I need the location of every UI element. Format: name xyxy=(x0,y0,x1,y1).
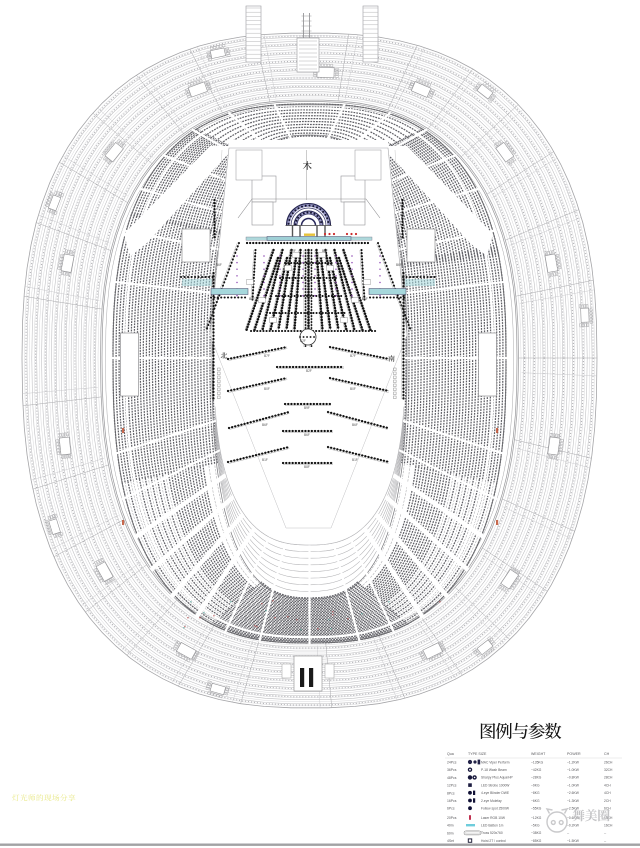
svg-text:4CH: 4CH xyxy=(604,783,611,787)
svg-text:~0.2KW: ~0.2KW xyxy=(567,824,580,828)
svg-text:B7F: B7F xyxy=(350,354,356,358)
svg-text:CH: CH xyxy=(604,752,610,756)
svg-text:4-eye Blinder DWE: 4-eye Blinder DWE xyxy=(481,791,510,795)
svg-text:B1F: B1F xyxy=(262,458,268,462)
svg-text:~1.3KW: ~1.3KW xyxy=(567,799,580,803)
svg-text:LED Batten 1m: LED Batten 1m xyxy=(481,824,504,828)
svg-text:20Pcs: 20Pcs xyxy=(447,816,457,820)
svg-text:~1.0KW: ~1.0KW xyxy=(567,783,580,787)
svg-text:2-eye Molefay: 2-eye Molefay xyxy=(481,799,502,803)
svg-text:~135KG: ~135KG xyxy=(531,760,544,764)
svg-text:16Pcs: 16Pcs xyxy=(447,799,457,803)
svg-text:B2F: B2F xyxy=(322,249,328,253)
svg-text:8Pcs: 8Pcs xyxy=(447,791,455,795)
svg-text:B0F: B0F xyxy=(264,387,270,391)
svg-text:~42KG: ~42KG xyxy=(531,768,542,772)
svg-text:~1.2KW: ~1.2KW xyxy=(567,760,580,764)
svg-text:B2F: B2F xyxy=(306,369,312,373)
svg-text:Sharpy Plus Aqua/HP: Sharpy Plus Aqua/HP xyxy=(481,776,514,780)
svg-text:4CH: 4CH xyxy=(604,791,611,795)
svg-text:WEIGHT: WEIGHT xyxy=(531,752,546,756)
svg-text:Hoist 2T / control: Hoist 2T / control xyxy=(481,839,506,843)
svg-text:16CH: 16CH xyxy=(604,824,613,828)
svg-text:~55KG: ~55KG xyxy=(531,807,542,811)
svg-text:~28KG: ~28KG xyxy=(531,776,542,780)
svg-text:Qua: Qua xyxy=(447,752,454,756)
svg-text:~38KG: ~38KG xyxy=(531,831,542,835)
svg-text:40m: 40m xyxy=(447,824,454,828)
svg-text:B6F: B6F xyxy=(262,423,268,427)
svg-text:--: -- xyxy=(604,839,606,843)
svg-text:~8KG: ~8KG xyxy=(531,791,540,795)
svg-text:24Pcs: 24Pcs xyxy=(447,761,457,765)
svg-text:~0.8KW: ~0.8KW xyxy=(567,776,580,780)
svg-text:Laser RGB 10W: Laser RGB 10W xyxy=(481,816,506,820)
svg-text:POWER: POWER xyxy=(567,752,581,756)
svg-text:B0F: B0F xyxy=(350,387,356,391)
svg-text:12Pcs: 12Pcs xyxy=(447,784,457,788)
svg-text:~2.6KW: ~2.6KW xyxy=(567,791,580,795)
svg-text:B7F: B7F xyxy=(264,354,270,358)
svg-text:~6KG: ~6KG xyxy=(531,799,540,803)
svg-text:--: -- xyxy=(567,831,569,835)
svg-text:B6F: B6F xyxy=(396,263,402,267)
svg-text:B0F: B0F xyxy=(249,297,255,301)
svg-text:B2F: B2F xyxy=(290,249,296,253)
svg-text:~1.5KW: ~1.5KW xyxy=(567,839,580,843)
svg-text:~85KG: ~85KG xyxy=(531,839,542,843)
svg-text:P-18 Wash Beam: P-18 Wash Beam xyxy=(481,768,507,772)
svg-text:~12KG: ~12KG xyxy=(531,816,542,820)
svg-text:Follow spot 2500W: Follow spot 2500W xyxy=(481,807,510,811)
svg-text:--: -- xyxy=(604,831,606,835)
svg-text:B1F: B1F xyxy=(352,458,358,462)
svg-text:B0F: B0F xyxy=(362,297,368,301)
svg-text:28CH: 28CH xyxy=(604,776,613,780)
svg-text:LED Strobe 1000W: LED Strobe 1000W xyxy=(481,783,510,787)
svg-text:2CH: 2CH xyxy=(604,799,611,803)
svg-text:26CH: 26CH xyxy=(604,760,613,764)
svg-text:TYPE SIZE: TYPE SIZE xyxy=(468,752,487,756)
svg-text:~9KG: ~9KG xyxy=(531,783,540,787)
svg-text:~1.0KW: ~1.0KW xyxy=(567,768,580,772)
svg-text:B6F: B6F xyxy=(352,423,358,427)
svg-text:48Pcs: 48Pcs xyxy=(447,776,457,780)
svg-text:6Pcs: 6Pcs xyxy=(447,807,455,811)
svg-text:6CH: 6CH xyxy=(604,807,611,811)
svg-text:4Set: 4Set xyxy=(447,839,454,843)
svg-text:32CH: 32CH xyxy=(604,768,613,772)
svg-text:B6F: B6F xyxy=(304,433,310,437)
svg-text:36Pcs: 36Pcs xyxy=(447,768,457,772)
svg-text:MAC Viper Perform: MAC Viper Perform xyxy=(481,760,510,764)
svg-text:60m: 60m xyxy=(447,831,454,835)
svg-text:B9F: B9F xyxy=(304,406,310,410)
svg-text:B8F: B8F xyxy=(304,465,310,469)
svg-text:B2F: B2F xyxy=(300,339,306,343)
svg-text:~2.5KW: ~2.5KW xyxy=(567,807,580,811)
svg-text:Truss 520x760: Truss 520x760 xyxy=(481,831,503,835)
svg-text:B6F: B6F xyxy=(216,263,222,267)
svg-text:~5KG: ~5KG xyxy=(531,824,540,828)
